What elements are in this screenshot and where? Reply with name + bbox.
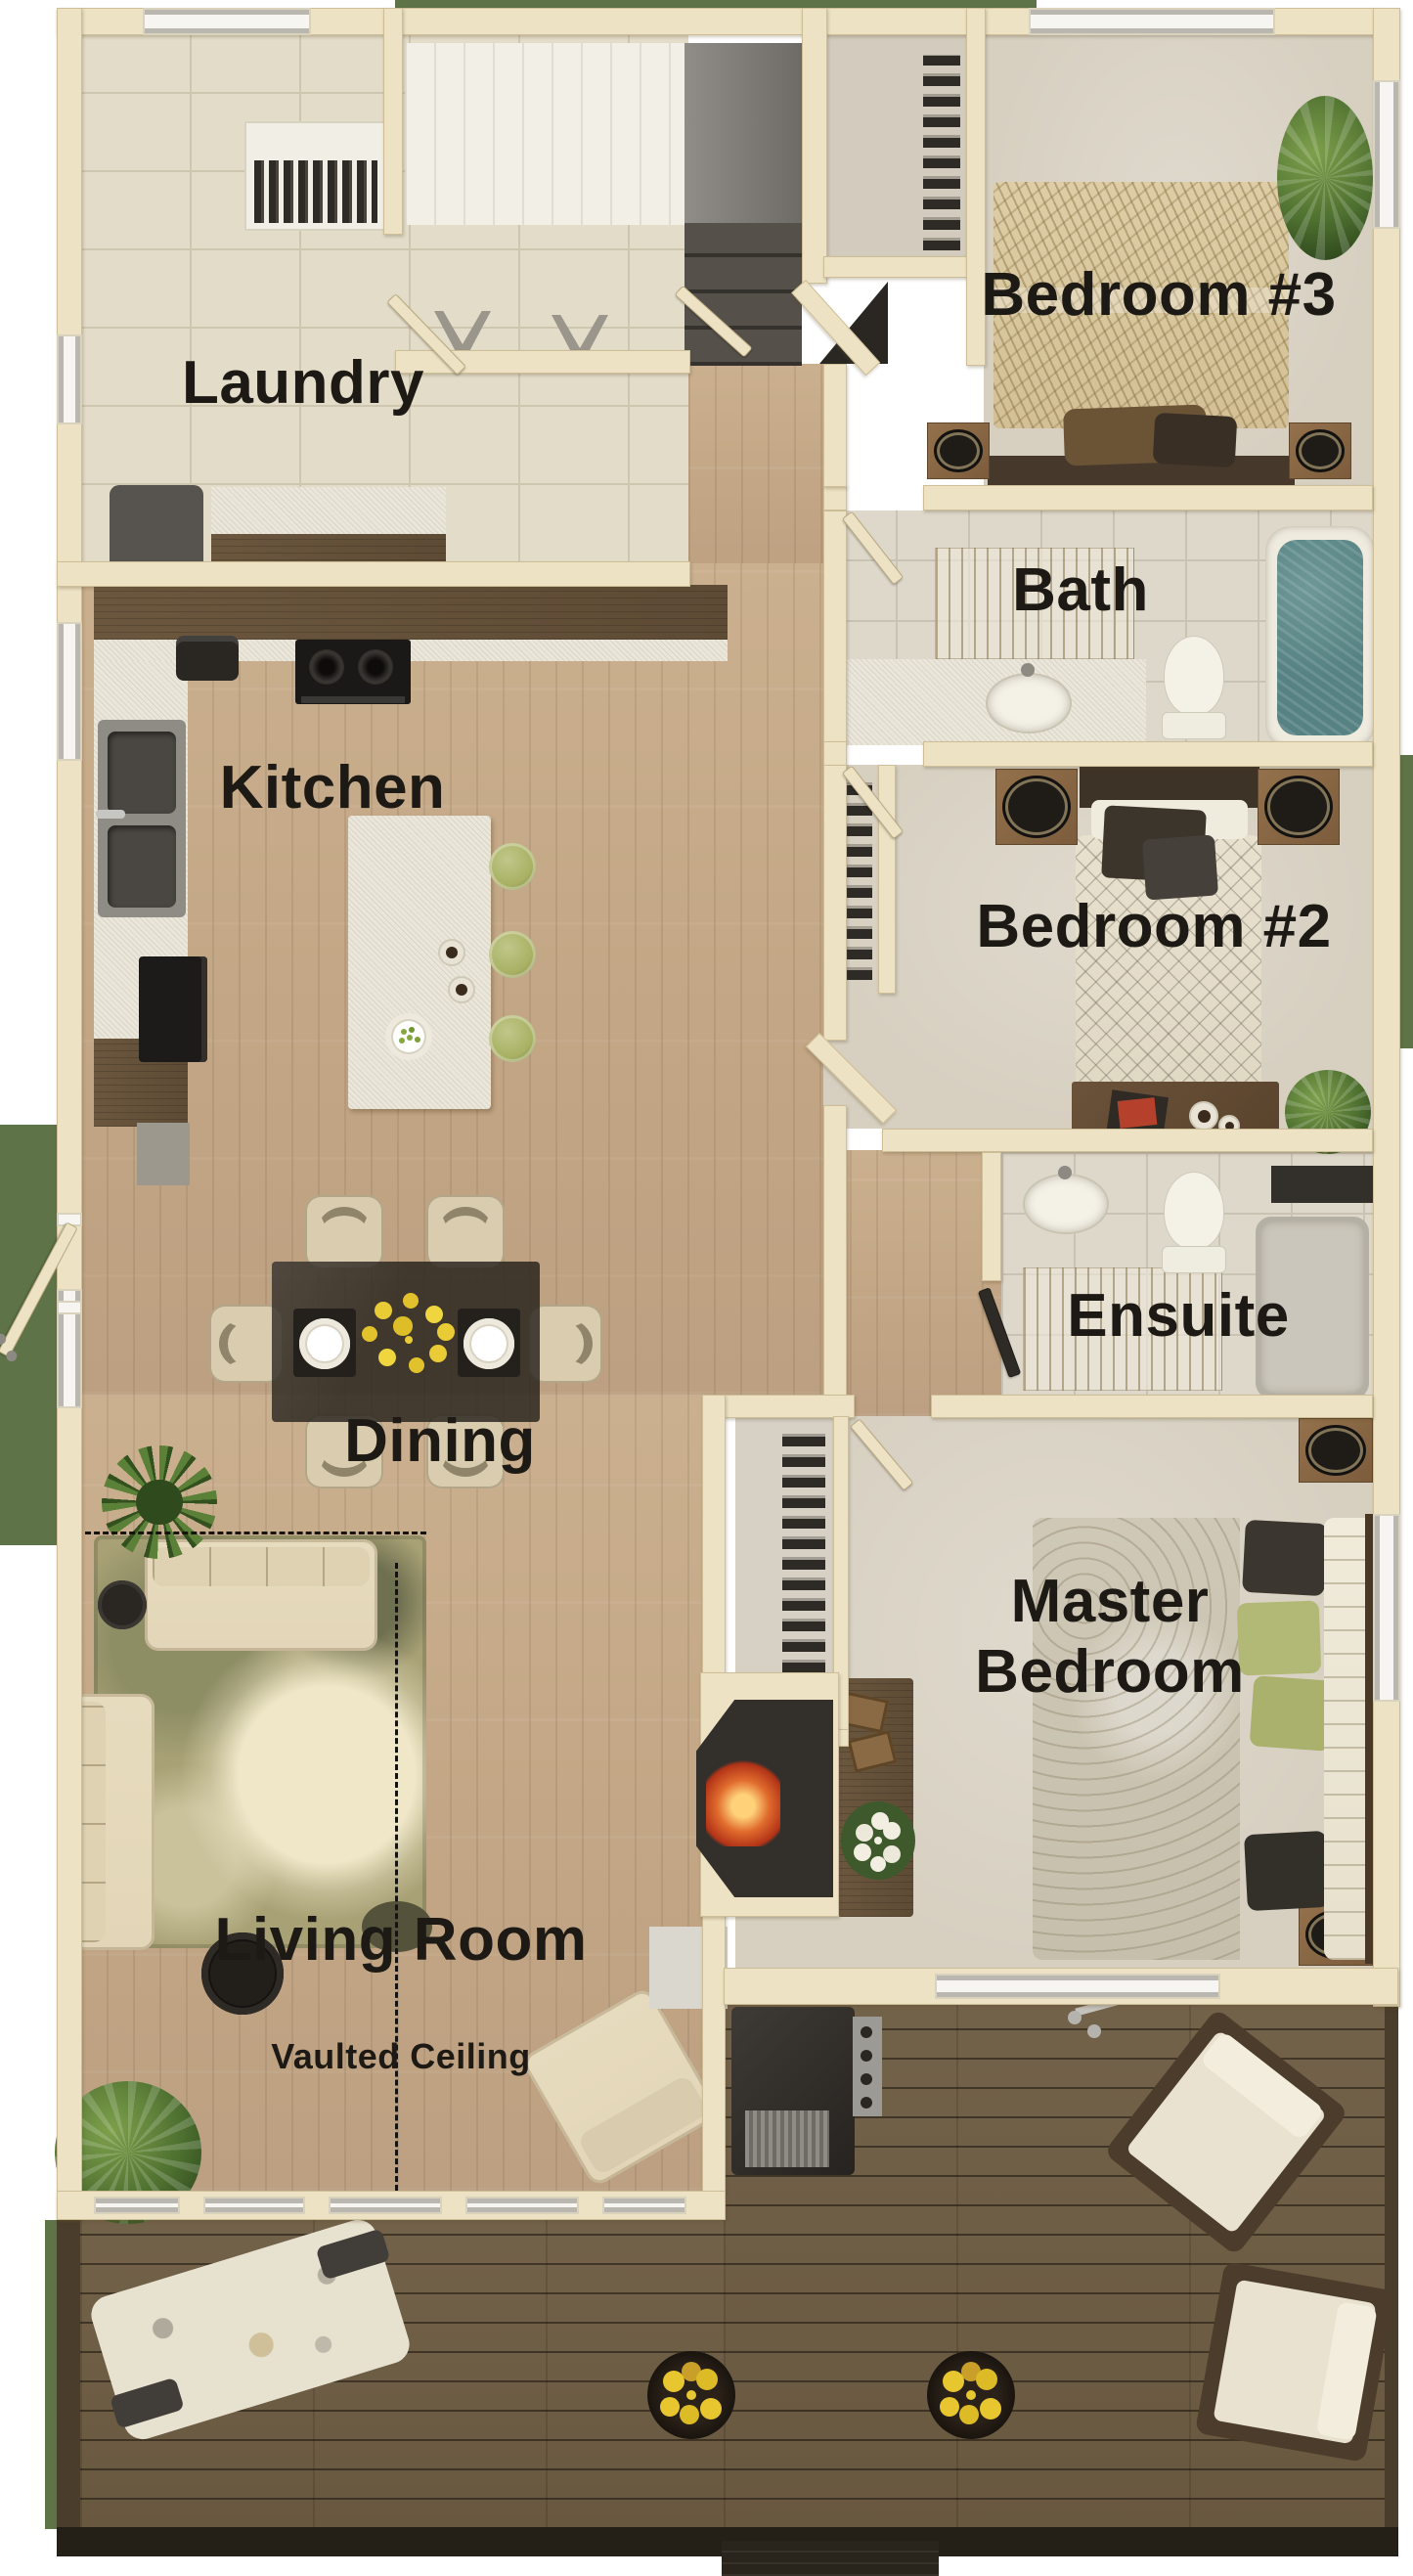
toilet-tank (1162, 1246, 1226, 1273)
window (1029, 8, 1275, 35)
closet-shoes (782, 1428, 825, 1713)
window (935, 1974, 1220, 1999)
wall-segment (823, 511, 847, 743)
wall-segment (923, 741, 1373, 767)
fire (706, 1756, 780, 1846)
hanging-clothes (254, 160, 377, 223)
wall-segment (823, 364, 847, 487)
lily-bouquet (841, 1801, 915, 1880)
wall-segment (724, 1395, 855, 1418)
window (57, 334, 82, 424)
floor-hall-lower (823, 1150, 1001, 1416)
vaulted-ceiling-line (76, 1532, 426, 1534)
bathtub-water (1277, 540, 1363, 735)
laundry-counter (211, 487, 446, 534)
room-label-ensuite: Ensuite (978, 1281, 1379, 1352)
cup (1189, 1101, 1218, 1131)
toilet-tank (1162, 712, 1226, 739)
stove-burner (358, 649, 393, 685)
window (329, 2197, 442, 2214)
nightstand (927, 422, 990, 479)
dinner-plate (464, 1318, 514, 1369)
wall-segment (982, 1152, 1001, 1281)
wall-segment (823, 485, 847, 511)
room-label-bedroom2: Bedroom #2 (919, 892, 1389, 962)
flower-centerpiece (405, 1336, 413, 1344)
nightstand (1258, 769, 1340, 845)
bbq-knob (861, 2073, 872, 2085)
nightstand (995, 769, 1078, 845)
toilet (1164, 636, 1224, 716)
dresser (1271, 1166, 1373, 1203)
toilet (1164, 1172, 1224, 1250)
bbq-tray (745, 2110, 829, 2167)
sink-basin (108, 825, 176, 908)
bathroom-sink (1023, 1174, 1109, 1234)
dining-chair (305, 1195, 383, 1269)
room-label-kitchen: Kitchen (147, 753, 518, 823)
kitchen-counter-top (94, 585, 728, 640)
vaulted-ceiling-line (395, 1563, 398, 2191)
toaster (176, 636, 239, 681)
wall-segment (823, 741, 847, 767)
nightstand (1289, 422, 1351, 479)
room-label-bedroom3: Bedroom #3 (929, 260, 1389, 331)
bed-pillow (1153, 413, 1238, 467)
faucet (1058, 1166, 1072, 1179)
coffee-cup (448, 976, 475, 1003)
deck-armchair (1195, 2261, 1394, 2463)
room-label-laundry: Laundry (117, 348, 489, 419)
floor-plan: Laundry Kitchen Dining Living Room Vault… (0, 0, 1413, 2576)
railing-finial (1087, 2024, 1101, 2038)
wall-segment (57, 561, 690, 587)
bar-stool (489, 843, 536, 890)
flower-pot (927, 2351, 1015, 2439)
stair-landing (684, 43, 802, 223)
faucet (96, 810, 125, 819)
dining-chair (426, 1195, 505, 1269)
stove-burner (309, 649, 344, 685)
room-label-living: Living Room (127, 1905, 675, 1976)
closet-shoes (923, 55, 960, 250)
wall-segment (931, 1395, 1373, 1418)
wall-segment (882, 1129, 1373, 1152)
deck-step (722, 2541, 939, 2576)
room-label-dining: Dining (284, 1406, 596, 1477)
staircase-upper (405, 43, 684, 225)
bbq-knob (861, 2050, 872, 2062)
railing-finial (1068, 2011, 1082, 2024)
faucet (1021, 663, 1035, 677)
bar-stool (489, 1015, 536, 1062)
grass-right (1398, 755, 1413, 1048)
floor-entry (688, 364, 823, 587)
window (465, 2197, 579, 2214)
wall-segment (383, 8, 403, 235)
potted-plant (1277, 96, 1373, 260)
bathroom-sink (986, 673, 1072, 733)
dishwasher (139, 956, 207, 1062)
potted-plant (102, 1445, 217, 1559)
sofa (145, 1539, 377, 1651)
bed-pillow (1244, 1831, 1330, 1911)
wall-segment (923, 485, 1373, 511)
flower-pot (647, 2351, 735, 2439)
window (94, 2197, 180, 2214)
bed-pillow (1142, 834, 1218, 900)
oven-handle (301, 696, 405, 703)
nightstand (1299, 1418, 1373, 1483)
wall-segment (823, 1105, 847, 1399)
wall-segment (878, 765, 896, 994)
wall-segment (823, 765, 847, 1041)
coffee-cup (438, 939, 465, 966)
bar-stool (489, 931, 536, 978)
bbq-knob (861, 2026, 872, 2038)
wall-segment (802, 8, 827, 284)
deck-edge-left (57, 2220, 80, 2529)
room-label-vaulted: Vaulted Ceiling (235, 2036, 567, 2077)
bbq-knob (861, 2097, 872, 2109)
window (203, 2197, 305, 2214)
laundry-appliance (110, 485, 203, 567)
kitchen-island (348, 816, 491, 1109)
grass-deck-left (45, 2220, 57, 2529)
window (1373, 1514, 1400, 1702)
deck-edge-right (1385, 2003, 1398, 2529)
book (1118, 1097, 1158, 1129)
window (1373, 80, 1400, 229)
room-label-bath: Bath (978, 555, 1183, 626)
window (57, 622, 82, 761)
door-jamb (57, 1301, 82, 1314)
speaker-table (98, 1580, 147, 1629)
window (143, 8, 311, 35)
fruit-plate (385, 1013, 432, 1060)
dinner-plate (299, 1318, 350, 1369)
room-label-master: Master Bedroom (870, 1567, 1349, 1708)
window (602, 2197, 686, 2214)
kitchen-mat (137, 1123, 190, 1185)
